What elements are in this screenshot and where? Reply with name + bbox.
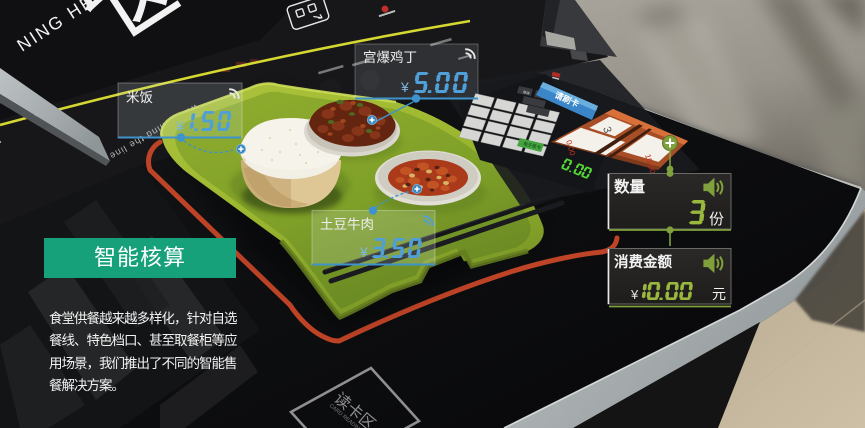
svg-text:份: 份 <box>709 211 724 228</box>
svg-text:¥: ¥ <box>359 244 368 260</box>
svg-text:数量: 数量 <box>614 177 646 196</box>
svg-text:¥: ¥ <box>175 118 184 134</box>
svg-text:土豆牛肉: 土豆牛肉 <box>320 217 374 232</box>
svg-text:消费金额: 消费金额 <box>614 253 672 271</box>
svg-text:¥: ¥ <box>630 287 639 302</box>
svg-text:宫爆鸡丁: 宫爆鸡丁 <box>363 49 417 65</box>
svg-text:¥: ¥ <box>400 79 409 95</box>
svg-text:元: 元 <box>712 286 726 302</box>
svg-text:米饭: 米饭 <box>126 90 153 105</box>
